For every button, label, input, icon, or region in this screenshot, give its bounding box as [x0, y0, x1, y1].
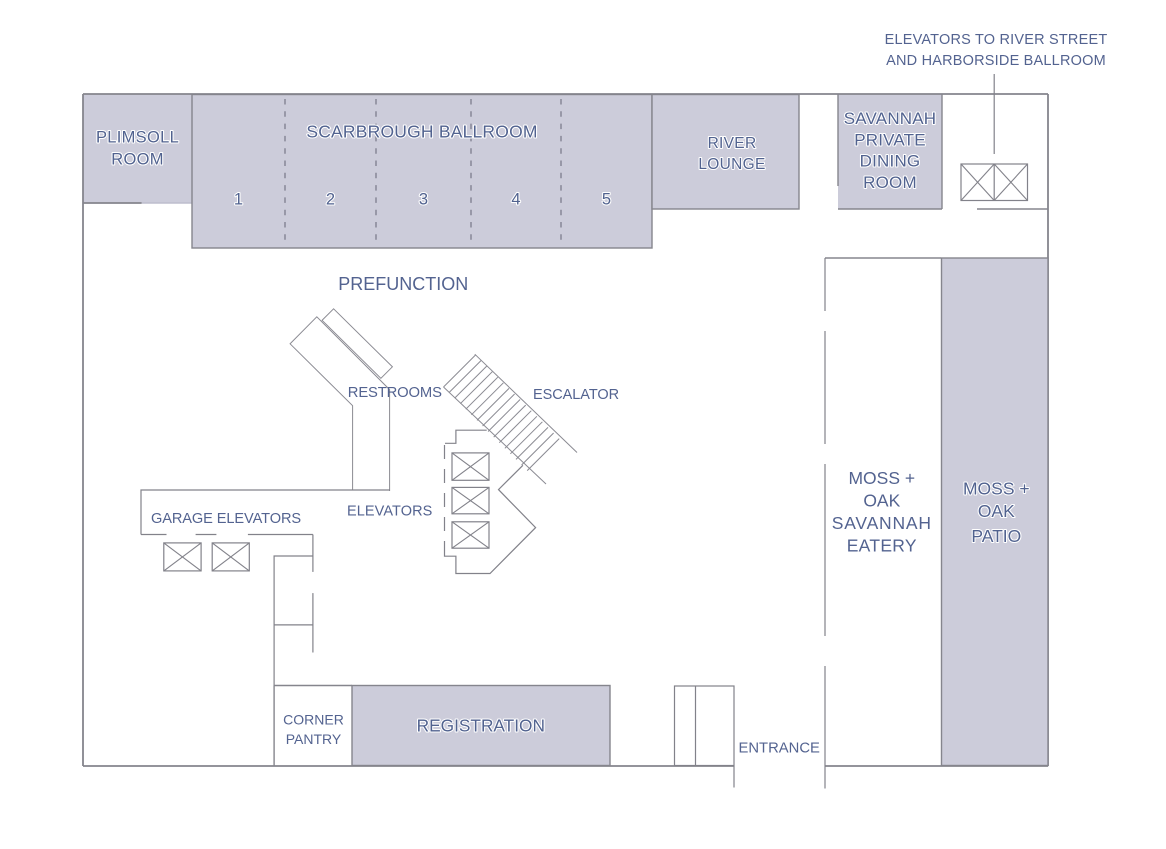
svg-text:RESTROOMS: RESTROOMS	[348, 385, 442, 401]
svg-text:ELEVATORS TO RIVER STREET: ELEVATORS TO RIVER STREET	[885, 32, 1108, 48]
svg-text:GARAGE ELEVATORS: GARAGE ELEVATORS	[151, 511, 301, 527]
svg-text:2: 2	[326, 191, 335, 209]
svg-text:MOSS +: MOSS +	[848, 468, 915, 488]
svg-text:SAVANNAH: SAVANNAH	[844, 109, 937, 128]
svg-text:CORNER: CORNER	[283, 712, 344, 728]
svg-text:PATIO: PATIO	[971, 526, 1021, 546]
svg-text:ENTRANCE: ENTRANCE	[739, 741, 821, 757]
svg-text:LOUNGE: LOUNGE	[698, 156, 765, 173]
svg-text:1: 1	[234, 191, 243, 209]
svg-text:PRIVATE: PRIVATE	[854, 130, 926, 149]
svg-text:AND HARBORSIDE BALLROOM: AND HARBORSIDE BALLROOM	[886, 53, 1106, 69]
svg-text:ROOM: ROOM	[863, 173, 917, 192]
svg-text:ESCALATOR: ESCALATOR	[533, 387, 619, 403]
svg-text:ELEVATORS: ELEVATORS	[347, 503, 433, 519]
svg-text:PLIMSOLL: PLIMSOLL	[96, 129, 179, 147]
svg-text:SAVANNAH: SAVANNAH	[832, 513, 932, 533]
svg-text:5: 5	[602, 191, 611, 209]
svg-text:3: 3	[419, 191, 428, 209]
svg-text:SCARBROUGH BALLROOM: SCARBROUGH BALLROOM	[306, 122, 537, 142]
svg-text:4: 4	[511, 191, 520, 209]
svg-text:OAK: OAK	[863, 490, 900, 510]
svg-text:DINING: DINING	[860, 152, 921, 171]
svg-text:ROOM: ROOM	[111, 151, 164, 169]
svg-text:PANTRY: PANTRY	[286, 731, 342, 747]
svg-text:OAK: OAK	[978, 501, 1015, 521]
svg-text:PREFUNCTION: PREFUNCTION	[338, 274, 468, 294]
svg-text:EATERY: EATERY	[847, 536, 917, 556]
svg-text:RIVER: RIVER	[708, 135, 757, 152]
svg-text:REGISTRATION: REGISTRATION	[417, 716, 545, 736]
svg-text:MOSS +: MOSS +	[963, 479, 1030, 499]
